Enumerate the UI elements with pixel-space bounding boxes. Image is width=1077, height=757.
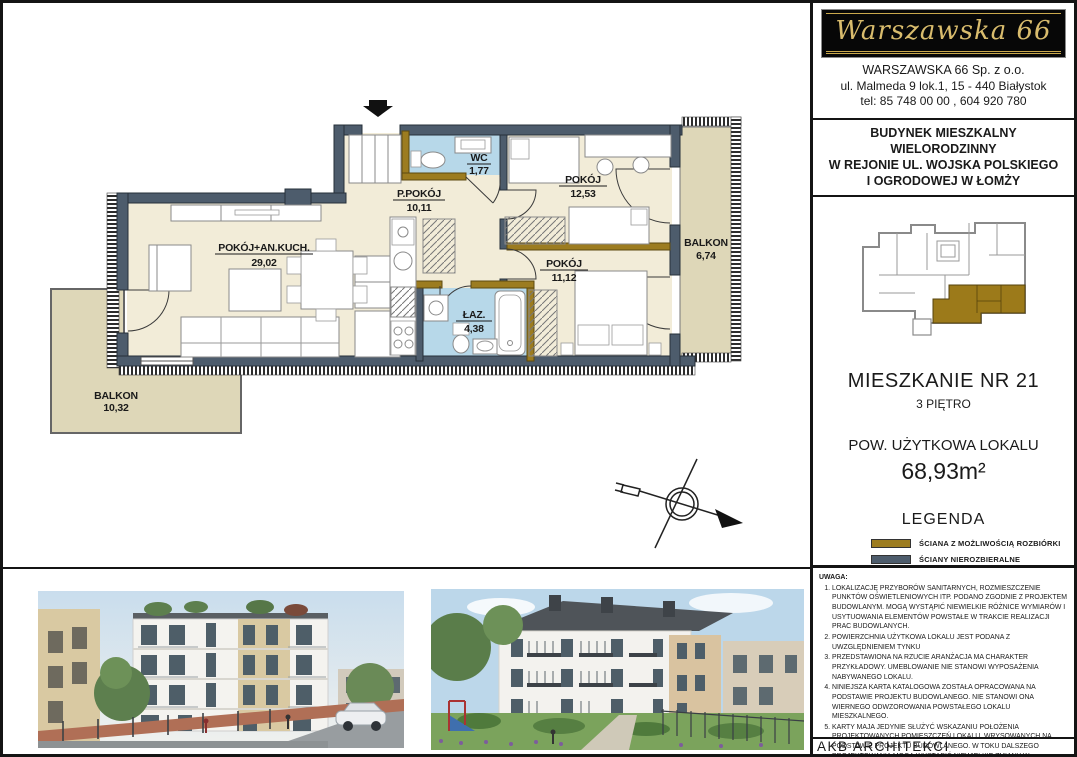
disclaimer-notes: UWAGA: LOKALIZACJĘ PRZYBORÓW SANITARNYCH… (813, 565, 1074, 737)
project-line-2: WIELORODZINNY (813, 141, 1074, 157)
apartment-number: MIESZKANIE NR 21 (813, 370, 1074, 393)
project-line-4: I OGRODOWEJ W ŁOMŻY (813, 173, 1074, 189)
note-2: POWIERZCHNIA UŻYTKOWA LOKALU JEST PODANA… (832, 633, 1068, 652)
svg-text:P.POKÓJ: P.POKÓJ (397, 187, 441, 200)
company-block: Warszawska 66 WARSZAWSKA 66 Sp. z o.o. u… (813, 3, 1074, 118)
project-title-block: BUDYNEK MIESZKALNY WIELORODZINNY W REJON… (813, 118, 1074, 195)
legend-swatch-gold (871, 539, 911, 548)
floor-plan-drawing: P.POKÓJ 10,11 WC 1,77 POKÓJ 12,53 POKÓJ+… (3, 3, 810, 567)
svg-text:ŁAZ.: ŁAZ. (463, 309, 486, 321)
note-3: PRZEDSTAWIONA NA RZUCIE ARANŻACJA MA CHA… (832, 653, 1068, 682)
note-4: NINIEJSZA KARTA KATALOGOWA ZOSTAŁA OPRAC… (832, 683, 1068, 722)
architect-footer: AKB ARCHITEKCI (813, 737, 1074, 754)
photo-courtyard-view (431, 589, 804, 750)
apartment-block: MIESZKANIE NR 21 3 PIĘTRO POW. UŻYTKOWA … (813, 195, 1074, 565)
svg-text:POKÓJ+AN.KUCH.: POKÓJ+AN.KUCH. (218, 241, 310, 254)
svg-text:12,53: 12,53 (570, 188, 596, 200)
svg-text:POKÓJ: POKÓJ (565, 173, 601, 186)
title-block-sidebar: Warszawska 66 WARSZAWSKA 66 Sp. z o.o. u… (810, 3, 1074, 754)
company-name: WARSZAWSKA 66 Sp. z o.o. (813, 63, 1074, 79)
legend: ŚCIANA Z MOŻLIWOŚCIĄ ROZBIÓRKI ŚCIANY NI… (813, 539, 1074, 564)
legend-swatch-dark (871, 555, 911, 564)
svg-text:BALKON: BALKON (684, 237, 728, 249)
kitchen-units (390, 217, 416, 355)
entrance-arrow-icon (363, 100, 393, 117)
window (141, 357, 193, 365)
logo: Warszawska 66 (821, 9, 1066, 58)
north-arrow-icon (615, 459, 743, 548)
svg-text:4,38: 4,38 (464, 323, 484, 335)
company-phone: tel: 85 748 00 00 , 604 920 780 (813, 94, 1074, 109)
apartment-floor: 3 PIĘTRO (813, 397, 1074, 411)
svg-text:1,77: 1,77 (469, 165, 489, 177)
legend-item-removable-wall: ŚCIANA Z MOŻLIWOŚCIĄ ROZBIÓRKI (871, 539, 1061, 548)
note-1: LOKALIZACJĘ PRZYBORÓW SANITARNYCH, ROZMI… (832, 584, 1068, 632)
company-address: ul. Malmeda 9 lok.1, 15 - 440 Białystok (813, 79, 1074, 94)
usable-area-value: 68,93m² (813, 458, 1074, 485)
renderings-area (3, 571, 810, 754)
svg-text:10,32: 10,32 (103, 402, 129, 414)
project-line-3: W REJONIE UL. WOJSKA POLSKIEGO (813, 157, 1074, 173)
floor-plan-area: P.POKÓJ 10,11 WC 1,77 POKÓJ 12,53 POKÓJ+… (3, 3, 810, 569)
key-plan (849, 215, 1039, 355)
svg-text:WC: WC (470, 152, 488, 164)
label-wc: WC 1,77 (467, 152, 491, 177)
key-plan-highlight (933, 285, 1025, 323)
logo-text: Warszawska 66 (826, 13, 1061, 54)
svg-text:10,11: 10,11 (407, 202, 432, 214)
usable-area-label: POW. UŻYTKOWA LOKALU (813, 437, 1074, 454)
svg-text:BALKON: BALKON (94, 390, 138, 402)
catalog-sheet: P.POKÓJ 10,11 WC 1,77 POKÓJ 12,53 POKÓJ+… (0, 0, 1077, 757)
legend-item-fixed-wall: ŚCIANY NIEROZBIERALNE (871, 555, 1020, 564)
svg-text:29,02: 29,02 (251, 257, 277, 269)
legend-title: LEGENDA (813, 511, 1074, 529)
notes-title: UWAGA: (819, 573, 1068, 583)
photo-street-view (38, 591, 404, 748)
svg-text:6,74: 6,74 (696, 250, 716, 262)
architect-name: AKB ARCHITEKCI (817, 739, 950, 754)
svg-text:11,12: 11,12 (552, 272, 577, 284)
svg-text:POKÓJ: POKÓJ (546, 257, 582, 270)
project-line-1: BUDYNEK MIESZKALNY (813, 125, 1074, 141)
